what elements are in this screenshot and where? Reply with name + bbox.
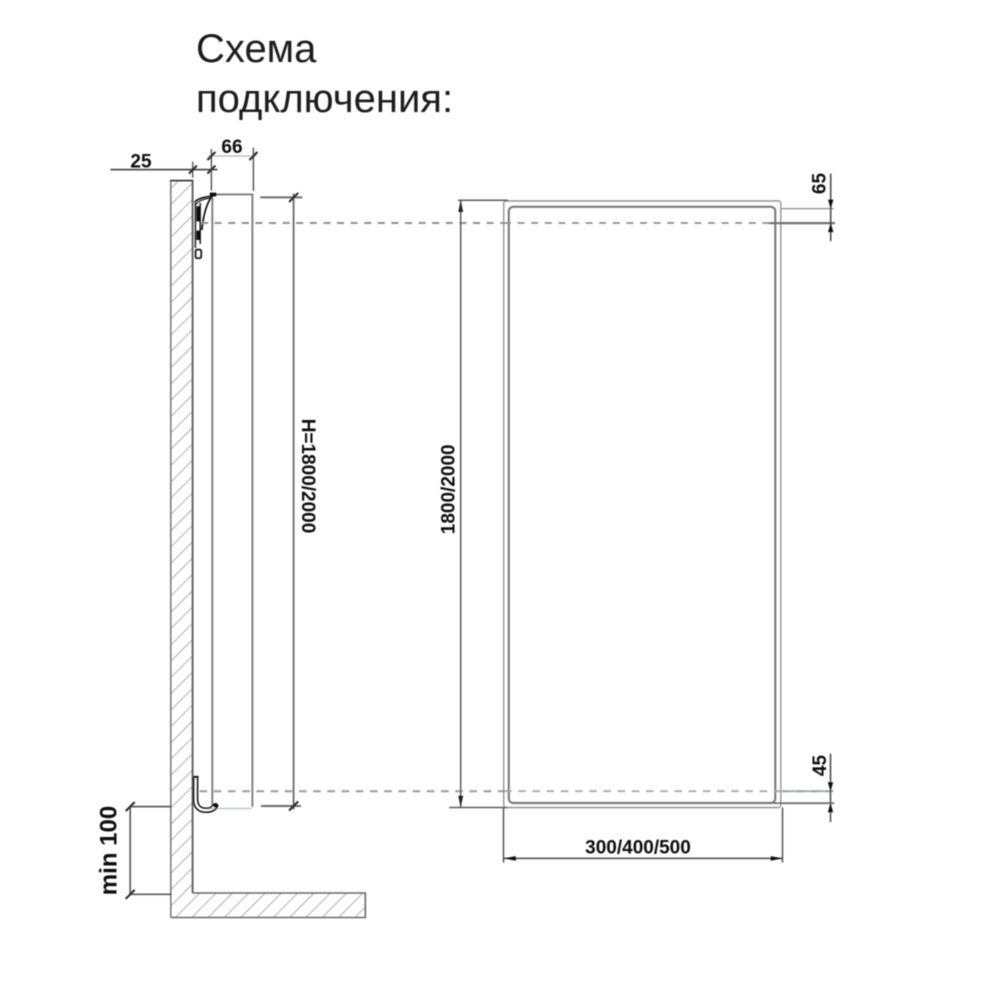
svg-text:300/400/500: 300/400/500 — [585, 838, 691, 859]
svg-text:H=1800/2000: H=1800/2000 — [297, 419, 318, 534]
svg-text:25: 25 — [130, 152, 152, 173]
svg-text:min 100: min 100 — [96, 806, 123, 895]
svg-text:66: 66 — [221, 137, 242, 158]
svg-text:подключения:: подключения: — [196, 77, 453, 121]
svg-text:45: 45 — [810, 755, 831, 777]
svg-text:Схема: Схема — [196, 27, 317, 71]
svg-text:1800/2000: 1800/2000 — [439, 444, 460, 534]
svg-text:65: 65 — [810, 173, 831, 195]
